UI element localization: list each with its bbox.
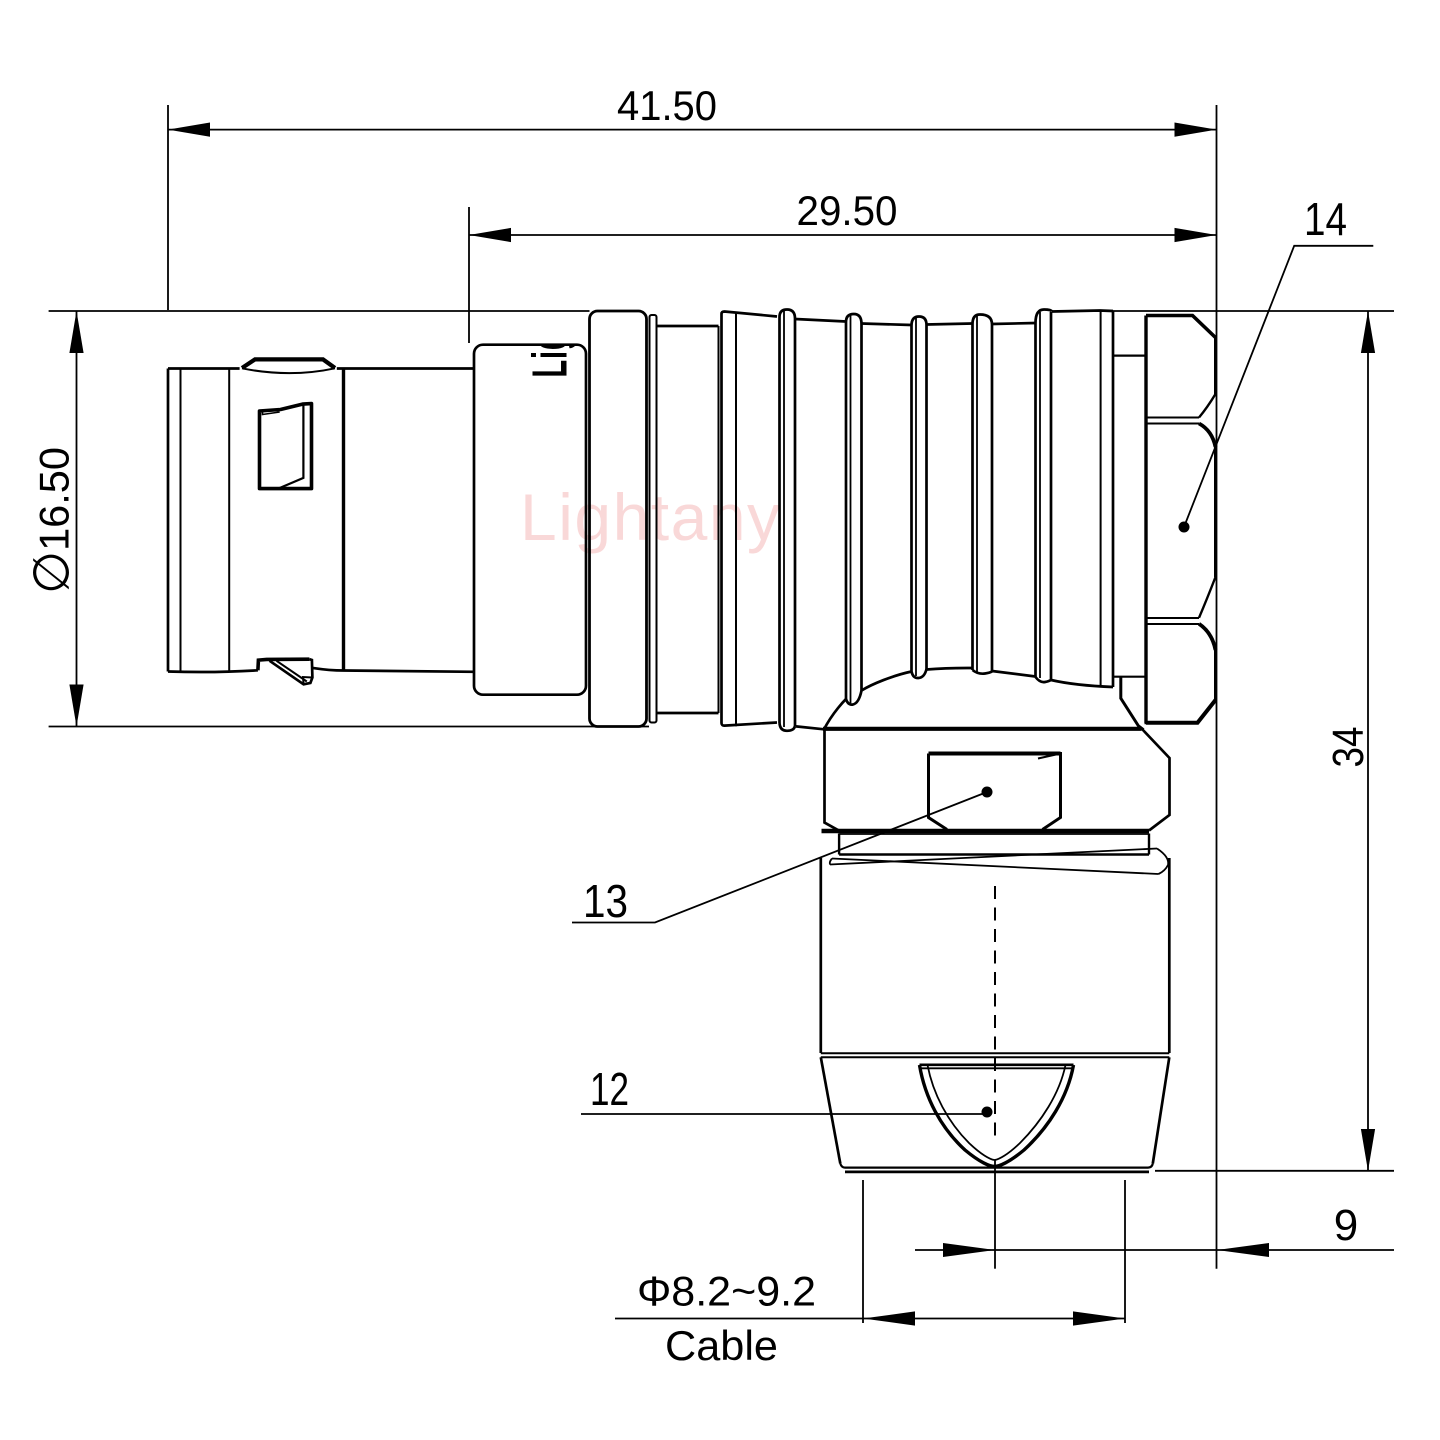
svg-text:12: 12	[590, 1063, 629, 1115]
svg-text:∅16.50: ∅16.50	[24, 447, 80, 594]
svg-text:41.50: 41.50	[617, 82, 717, 129]
svg-text:29.50: 29.50	[797, 187, 898, 234]
svg-text:Lightany: Lightany	[520, 480, 782, 554]
svg-text:34: 34	[1324, 727, 1373, 768]
svg-text:Cable: Cable	[665, 1322, 778, 1369]
svg-text:9: 9	[1334, 1201, 1358, 1250]
svg-text:13: 13	[583, 875, 628, 927]
svg-text:14: 14	[1304, 193, 1347, 245]
svg-text:Φ8.2~9.2: Φ8.2~9.2	[637, 1268, 816, 1315]
